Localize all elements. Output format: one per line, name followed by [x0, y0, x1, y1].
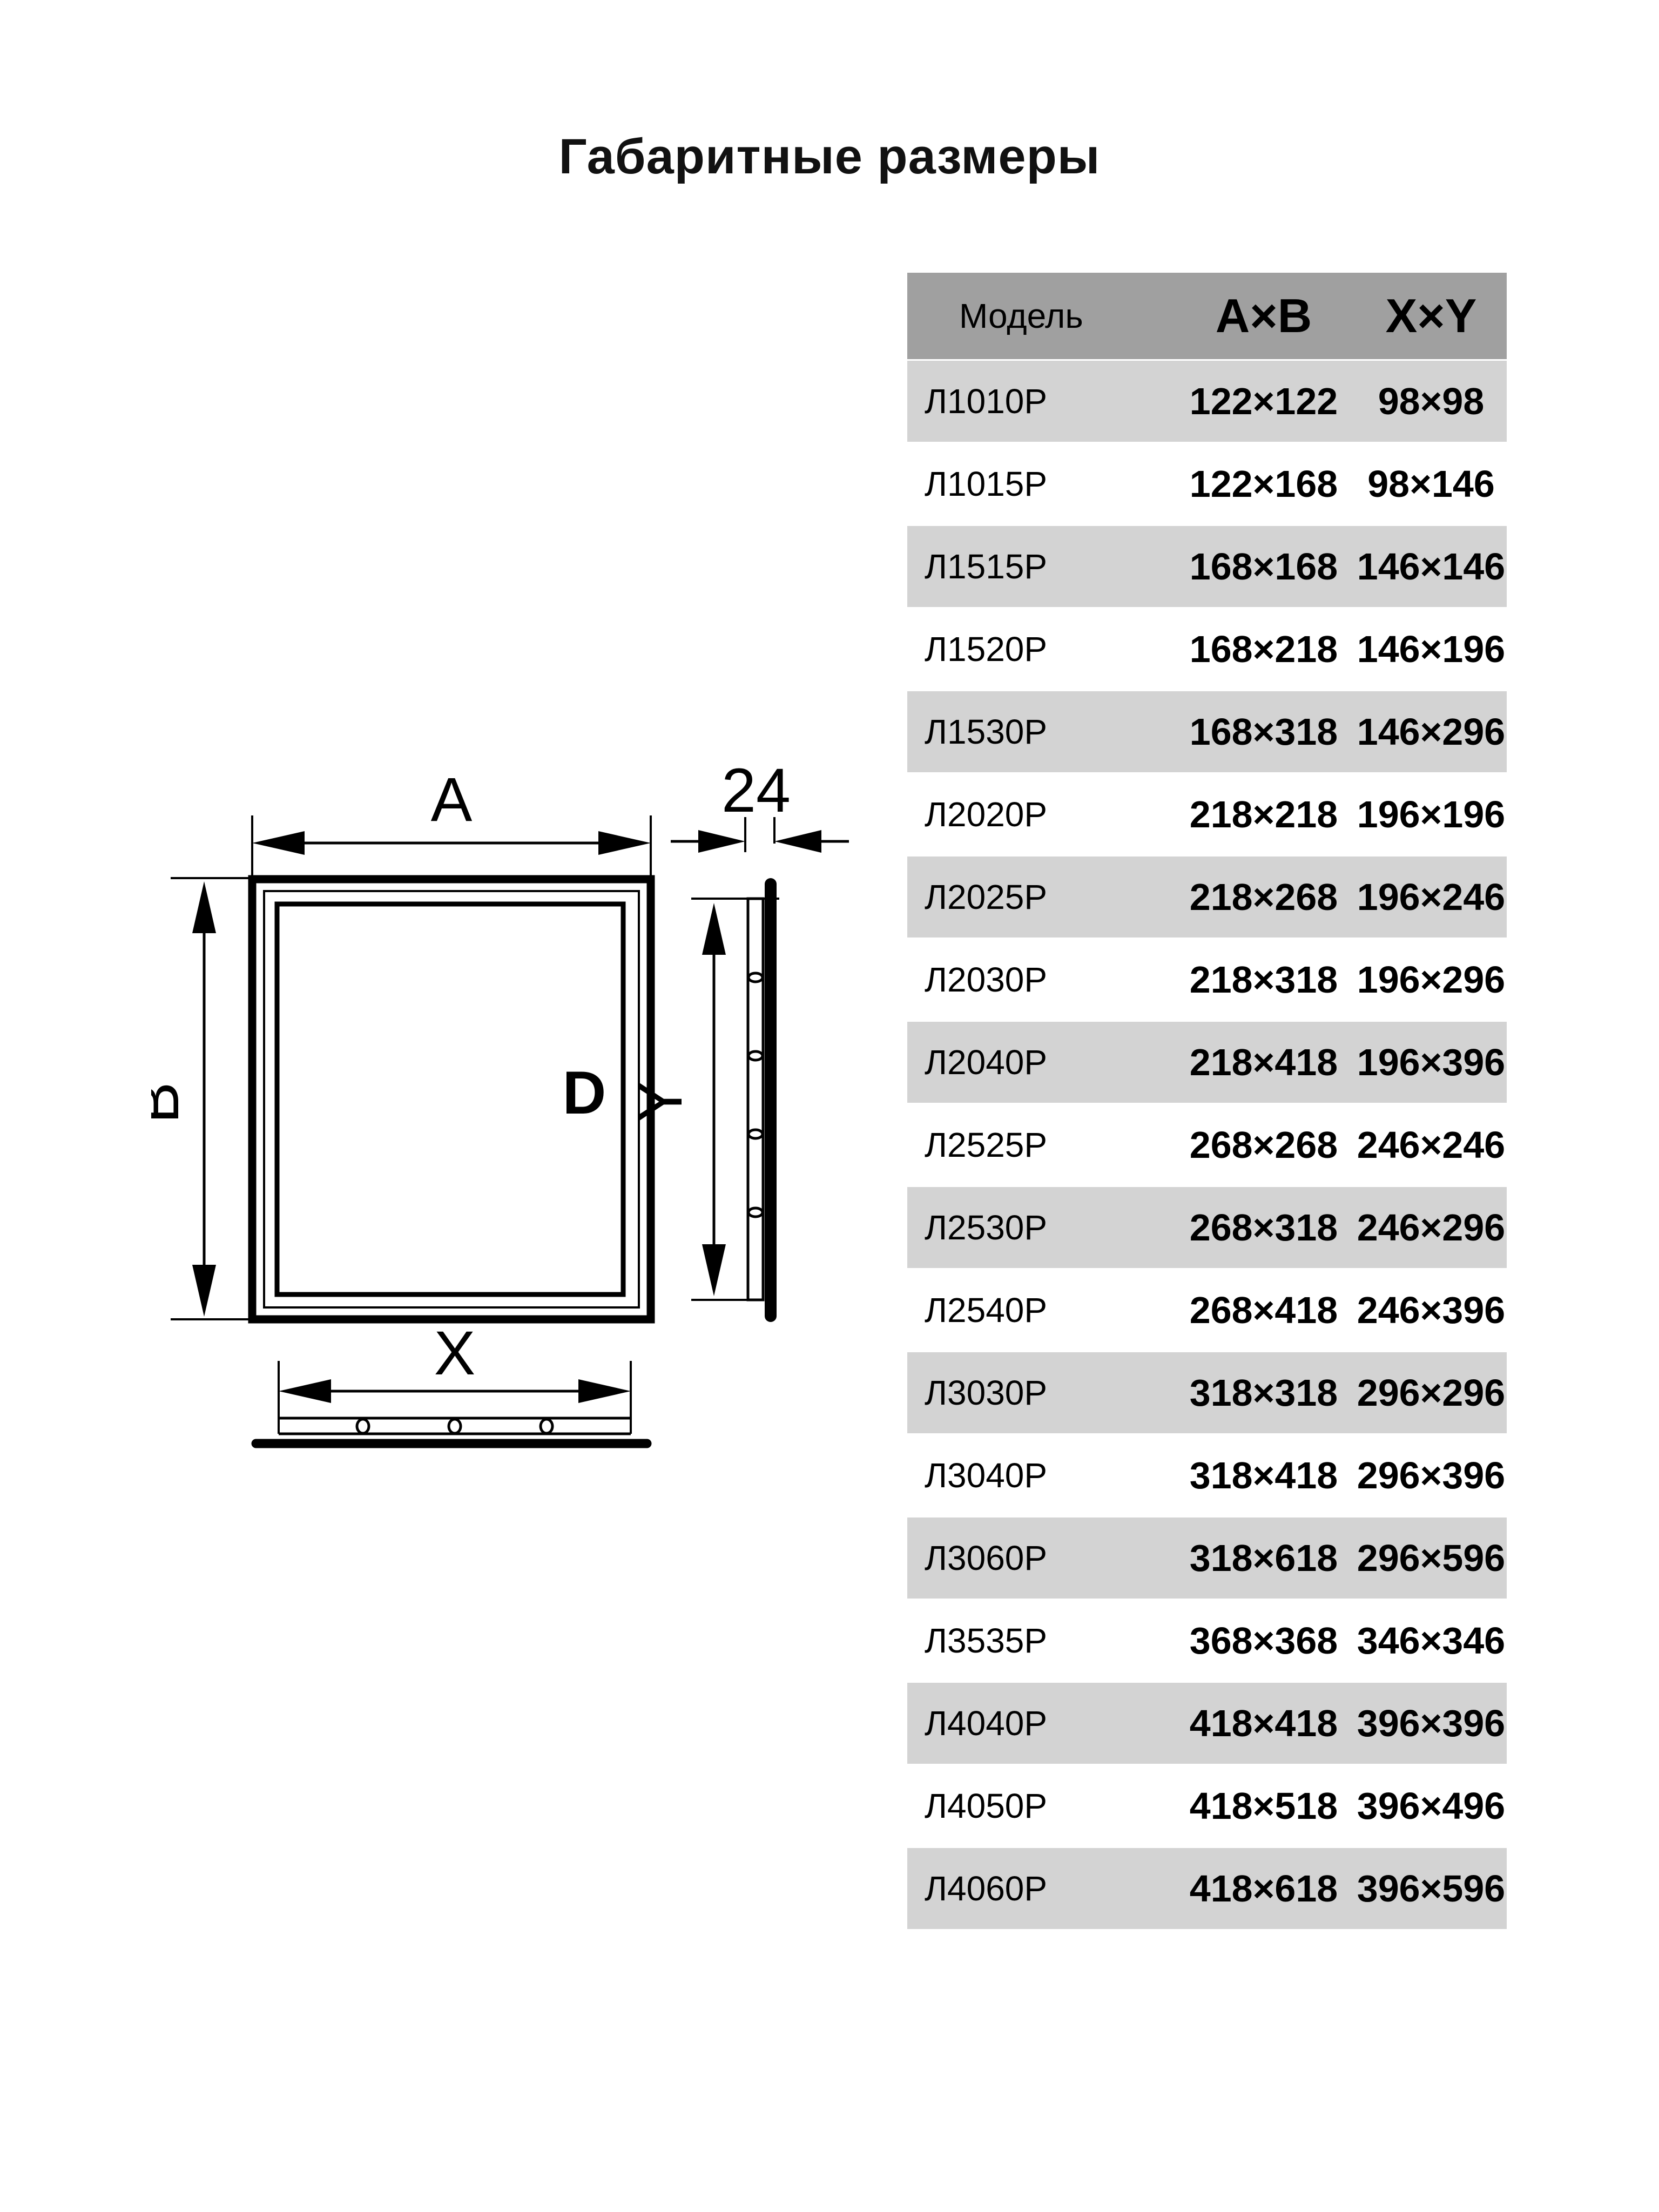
- ab-cell: 318×418: [1172, 1454, 1355, 1497]
- table-body: Л1010Р 122×122 98×98 Л1015Р 122×168 98×1…: [907, 359, 1507, 1929]
- dim-label-a: A: [431, 765, 473, 834]
- xy-cell: 246×246: [1355, 1123, 1507, 1166]
- dim-label-x: X: [434, 1319, 476, 1388]
- arrowhead-left: [252, 831, 305, 855]
- table-row: Л2040Р 218×418 196×396: [907, 1020, 1507, 1103]
- table-row: Л2030Р 218×318 196×296: [907, 938, 1507, 1020]
- frame-profile: [748, 899, 763, 1300]
- ab-cell: 268×418: [1172, 1289, 1355, 1332]
- dimensions-table: Модель A×B X×Y Л1010Р 122×122 98×98 Л101…: [907, 273, 1507, 1929]
- xy-cell: 396×596: [1355, 1867, 1507, 1910]
- model-cell: Л1010Р: [907, 381, 1172, 421]
- mount-hole: [748, 1051, 763, 1060]
- xy-cell: 346×346: [1355, 1619, 1507, 1662]
- arrowhead-down: [192, 1265, 216, 1317]
- model-cell: Л2540Р: [907, 1290, 1172, 1330]
- side-view: [671, 817, 849, 1322]
- ab-cell: 368×368: [1172, 1619, 1355, 1662]
- table-row: Л4060Р 418×618 396×596: [907, 1846, 1507, 1929]
- xy-cell: 246×396: [1355, 1289, 1507, 1332]
- model-cell: Л4050Р: [907, 1786, 1172, 1826]
- ab-cell: 418×518: [1172, 1784, 1355, 1827]
- model-cell: Л2525Р: [907, 1125, 1172, 1165]
- ab-cell: 318×618: [1172, 1536, 1355, 1580]
- xy-cell: 196×296: [1355, 958, 1507, 1001]
- xy-cell: 396×396: [1355, 1702, 1507, 1745]
- xy-cell: 146×196: [1355, 628, 1507, 671]
- technical-drawing: D A B X: [151, 751, 864, 1458]
- ab-cell: 168×318: [1172, 710, 1355, 753]
- ab-cell: 418×418: [1172, 1702, 1355, 1745]
- mount-hole: [748, 973, 763, 982]
- xy-cell: 296×296: [1355, 1371, 1507, 1414]
- mount-hole: [357, 1419, 369, 1433]
- column-header-ab: A×B: [1172, 288, 1355, 343]
- table-header-row: Модель A×B X×Y: [907, 273, 1507, 359]
- xy-cell: 146×296: [1355, 710, 1507, 753]
- ab-cell: 122×122: [1172, 380, 1355, 423]
- mount-hole: [748, 1130, 763, 1138]
- model-cell: Л3060Р: [907, 1538, 1172, 1578]
- arrowhead-left: [279, 1379, 331, 1403]
- table-row: Л3040Р 318×418 296×396: [907, 1433, 1507, 1516]
- model-cell: Л2030Р: [907, 960, 1172, 1000]
- model-cell: Л3040Р: [907, 1455, 1172, 1495]
- ab-cell: 268×318: [1172, 1206, 1355, 1249]
- arrowhead-up: [702, 903, 726, 955]
- ab-cell: 268×268: [1172, 1123, 1355, 1166]
- mount-hole: [449, 1419, 461, 1433]
- ab-cell: 168×168: [1172, 545, 1355, 588]
- arrowhead-down: [702, 1244, 726, 1296]
- xy-cell: 296×396: [1355, 1454, 1507, 1497]
- dim-label-b: B: [151, 1082, 192, 1124]
- model-cell: Л4040Р: [907, 1703, 1172, 1743]
- dim-label-depth: 24: [721, 756, 791, 825]
- arrowhead-right: [598, 831, 651, 855]
- table-row: Л2530Р 268×318 246×296: [907, 1185, 1507, 1268]
- model-cell: Л2020Р: [907, 794, 1172, 834]
- table-row: Л4040Р 418×418 396×396: [907, 1681, 1507, 1764]
- table-row: Л3030Р 318×318 296×296: [907, 1351, 1507, 1433]
- ab-cell: 218×318: [1172, 958, 1355, 1001]
- xy-cell: 196×196: [1355, 793, 1507, 836]
- xy-cell: 296×596: [1355, 1536, 1507, 1580]
- mount-hole: [748, 1208, 763, 1217]
- model-cell: Л3535Р: [907, 1621, 1172, 1661]
- xy-cell: 146×146: [1355, 545, 1507, 588]
- arrowhead-right: [578, 1379, 631, 1403]
- xy-cell: 98×98: [1355, 380, 1507, 423]
- table-row: Л2525Р 268×268 246×246: [907, 1103, 1507, 1185]
- ab-cell: 218×218: [1172, 793, 1355, 836]
- flange-bar: [765, 878, 777, 1322]
- page: { "title": "Габаритные размеры", "table"…: [0, 0, 1659, 2212]
- column-header-xy: X×Y: [1355, 288, 1507, 343]
- door-label: D: [563, 1059, 606, 1127]
- table-row: Л1010Р 122×122 98×98: [907, 359, 1507, 442]
- model-cell: Л1530Р: [907, 712, 1172, 752]
- table-row: Л4050Р 418×518 396×496: [907, 1764, 1507, 1846]
- ab-cell: 218×418: [1172, 1041, 1355, 1084]
- model-cell: Л1015Р: [907, 464, 1172, 504]
- arrowhead-left: [774, 830, 821, 853]
- table-row: Л3535Р 368×368 346×346: [907, 1599, 1507, 1681]
- xy-cell: 196×246: [1355, 875, 1507, 919]
- xy-cell: 196×396: [1355, 1041, 1507, 1084]
- model-cell: Л2040Р: [907, 1042, 1172, 1082]
- model-cell: Л1515Р: [907, 547, 1172, 586]
- table-row: Л1015Р 122×168 98×146: [907, 442, 1507, 524]
- model-cell: Л2530Р: [907, 1208, 1172, 1247]
- table-row: Л1520Р 168×218 146×196: [907, 607, 1507, 690]
- page-title: Габаритные размеры: [0, 129, 1659, 185]
- mount-hole: [541, 1419, 552, 1433]
- table-row: Л2025Р 218×268 196×246: [907, 855, 1507, 938]
- xy-cell: 246×296: [1355, 1206, 1507, 1249]
- table-row: Л2540Р 268×418 246×396: [907, 1268, 1507, 1351]
- table-row: Л2020Р 218×218 196×196: [907, 772, 1507, 855]
- bottom-flange-view: [256, 1418, 647, 1444]
- table-row: Л1515Р 168×168 146×146: [907, 524, 1507, 607]
- ab-cell: 418×618: [1172, 1867, 1355, 1910]
- model-cell: Л4060Р: [907, 1869, 1172, 1908]
- ab-cell: 122×168: [1172, 462, 1355, 505]
- model-cell: Л1520Р: [907, 629, 1172, 669]
- arrowhead-right: [698, 830, 745, 853]
- model-cell: Л3030Р: [907, 1373, 1172, 1413]
- xy-cell: 98×146: [1355, 462, 1507, 505]
- arrowhead-up: [192, 881, 216, 933]
- ab-cell: 218×268: [1172, 875, 1355, 919]
- xy-cell: 396×496: [1355, 1784, 1507, 1827]
- column-header-model: Модель: [907, 296, 1172, 336]
- ab-cell: 168×218: [1172, 628, 1355, 671]
- ab-cell: 318×318: [1172, 1371, 1355, 1414]
- model-cell: Л2025Р: [907, 877, 1172, 917]
- table-row: Л1530Р 168×318 146×296: [907, 690, 1507, 772]
- dim-label-y: Y: [626, 1081, 695, 1123]
- table-row: Л3060Р 318×618 296×596: [907, 1516, 1507, 1599]
